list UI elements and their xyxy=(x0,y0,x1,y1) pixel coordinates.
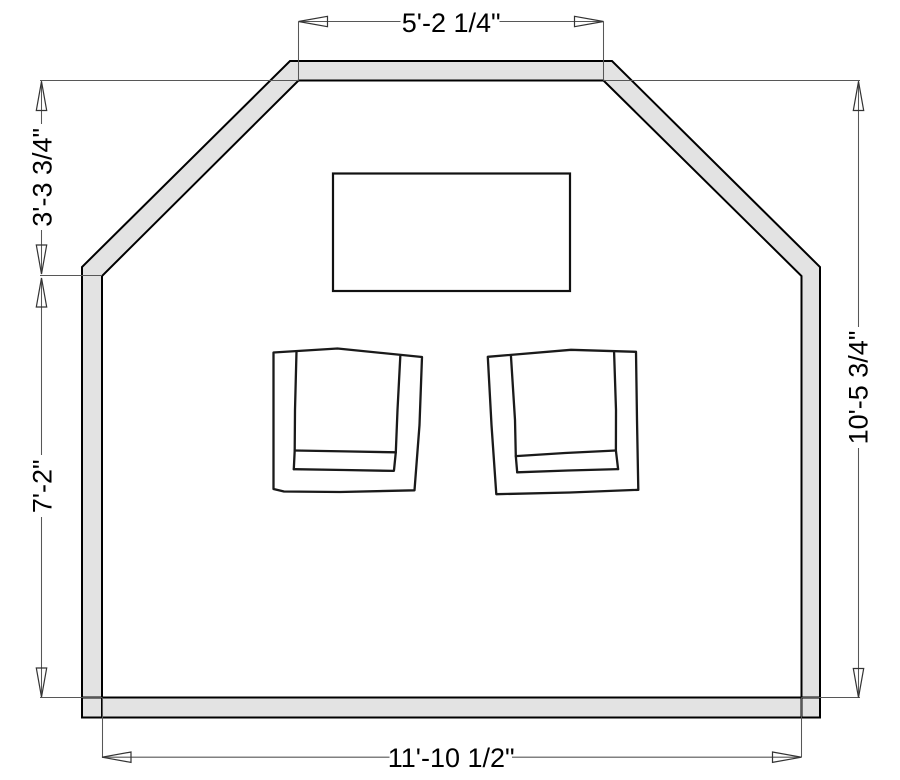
svg-text:10'-5 3/4": 10'-5 3/4" xyxy=(844,331,874,445)
svg-text:11'-10 1/2": 11'-10 1/2" xyxy=(388,743,515,773)
svg-text:7'-2": 7'-2" xyxy=(27,459,57,513)
svg-text:3'-3 3/4": 3'-3 3/4" xyxy=(27,128,57,227)
svg-text:5'-2 1/4": 5'-2 1/4" xyxy=(402,8,501,38)
